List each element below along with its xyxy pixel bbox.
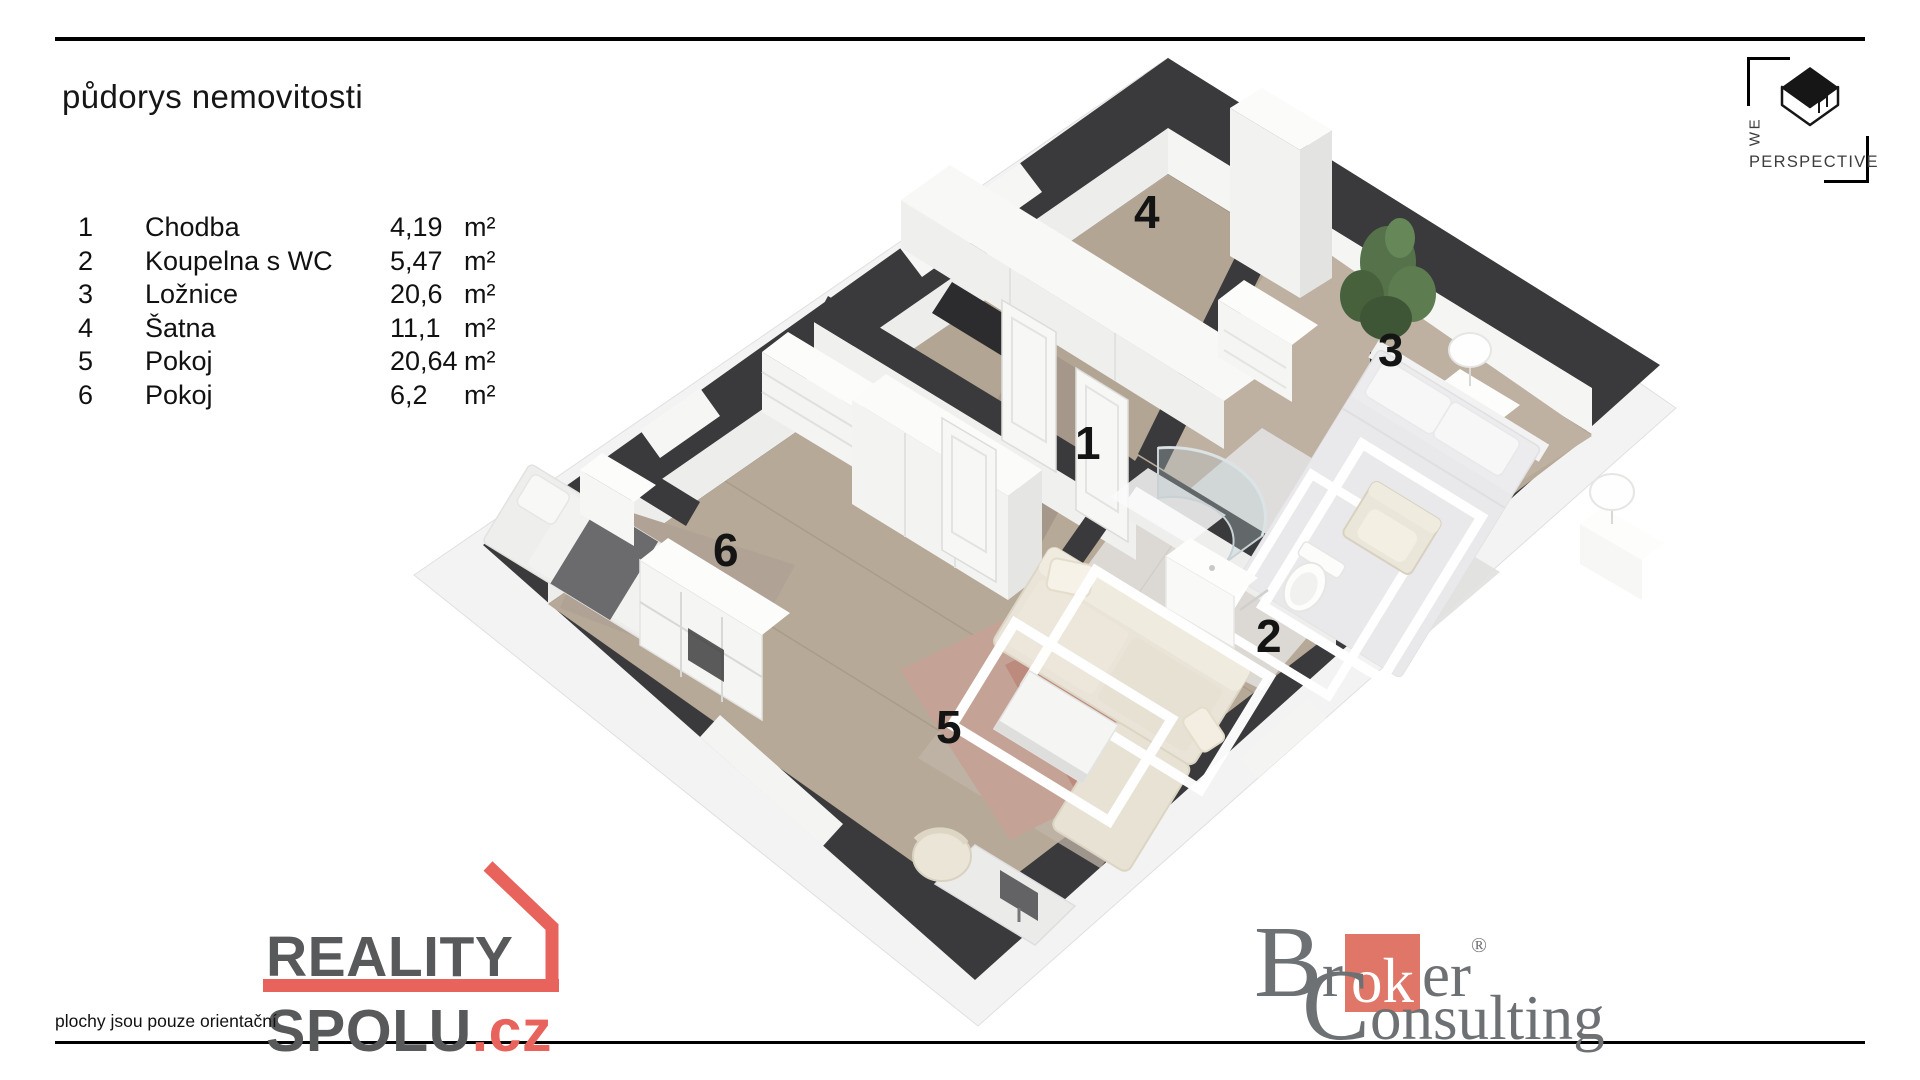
legend-area: 6,2 (390, 380, 464, 411)
legend-area: 11,1 (390, 313, 464, 344)
legend-num: 4 (78, 313, 145, 344)
legend-unit: m² (464, 279, 504, 310)
room-label-6: 6 (713, 524, 739, 576)
legend-name: Ložnice (145, 279, 390, 310)
legend-unit: m² (464, 313, 504, 344)
reality-spolu-line2: SPOLU.cz (266, 997, 552, 1065)
legend-name: Pokoj (145, 380, 390, 411)
legend-unit: m² (464, 246, 504, 277)
floorplan-render: 1 2 3 4 5 6 (0, 0, 1920, 1080)
broker-line2-rest: onsulting (1370, 983, 1605, 1053)
legend-area: 4,19 (390, 212, 464, 243)
reality-spolu-line1: REALITY (266, 924, 513, 990)
we-perspective-wordmark: PERSPECTIVE (1749, 153, 1879, 172)
legend-num: 3 (78, 279, 145, 310)
legend-row: 1 Chodba 4,19 m² (78, 212, 504, 246)
legend-area: 5,47 (390, 246, 464, 277)
we-perspective-we: WE (1747, 110, 1764, 154)
legend-row: 6 Pokoj 6,2 m² (78, 380, 504, 414)
legend-name: Pokoj (145, 346, 390, 377)
legend-num: 6 (78, 380, 145, 411)
page: půdorys nemovitosti 1 Chodba 4,19 m² 2 K… (0, 0, 1920, 1080)
legend-area: 20,64 (390, 346, 464, 377)
room-label-1: 1 (1075, 417, 1101, 469)
room-label-2: 2 (1256, 610, 1282, 662)
legend-num: 5 (78, 346, 145, 377)
broker-consulting-line2: Consulting (1302, 963, 1605, 1061)
legend-num: 2 (78, 246, 145, 277)
house-icon (1779, 66, 1841, 128)
legend-unit: m² (464, 346, 504, 377)
legend-unit: m² (464, 212, 504, 243)
legend-unit: m² (464, 380, 504, 411)
nightstand (1580, 474, 1664, 600)
legend-name: Koupelna s WC (145, 246, 390, 277)
room-legend: 1 Chodba 4,19 m² 2 Koupelna s WC 5,47 m²… (78, 212, 504, 413)
registered-icon: ® (1471, 933, 1487, 957)
legend-row: 4 Šatna 11,1 m² (78, 313, 504, 347)
legend-row: 5 Pokoj 20,64 m² (78, 346, 504, 380)
area-disclaimer: plochy jsou pouze orientační (55, 1011, 277, 1032)
legend-row: 3 Ložnice 20,6 m² (78, 279, 504, 313)
legend-name: Chodba (145, 212, 390, 243)
room-label-3: 3 (1378, 324, 1404, 376)
spolu-text: SPOLU (266, 998, 472, 1064)
legend-row: 2 Koupelna s WC 5,47 m² (78, 246, 504, 280)
legend-num: 1 (78, 212, 145, 243)
room-label-4: 4 (1134, 186, 1160, 238)
broker-c: C (1302, 949, 1370, 1062)
legend-name: Šatna (145, 313, 390, 344)
desk-chair (913, 830, 971, 881)
spolu-tld: .cz (472, 998, 552, 1064)
legend-area: 20,6 (390, 279, 464, 310)
room-label-5: 5 (936, 701, 962, 753)
